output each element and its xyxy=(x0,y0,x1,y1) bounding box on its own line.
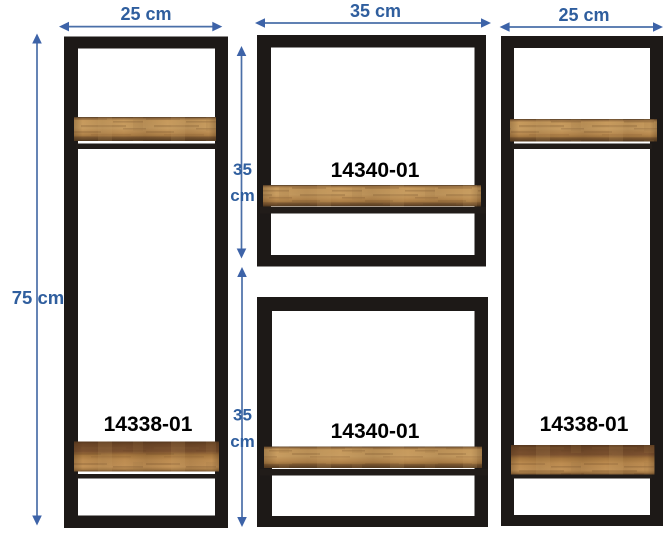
svg-text:25 cm: 25 cm xyxy=(120,4,171,24)
svg-text:14340-01: 14340-01 xyxy=(331,420,420,443)
svg-text:25 cm: 25 cm xyxy=(558,5,609,25)
svg-text:cm: cm xyxy=(230,432,255,451)
svg-text:cm: cm xyxy=(230,186,255,205)
svg-text:75 cm: 75 cm xyxy=(12,287,64,308)
svg-text:14338-01: 14338-01 xyxy=(540,413,629,436)
svg-text:35 cm: 35 cm xyxy=(350,1,401,21)
svg-text:14338-01: 14338-01 xyxy=(104,413,193,436)
svg-text:35: 35 xyxy=(233,160,252,179)
svg-text:14340-01: 14340-01 xyxy=(331,159,420,182)
svg-text:35: 35 xyxy=(233,406,252,425)
